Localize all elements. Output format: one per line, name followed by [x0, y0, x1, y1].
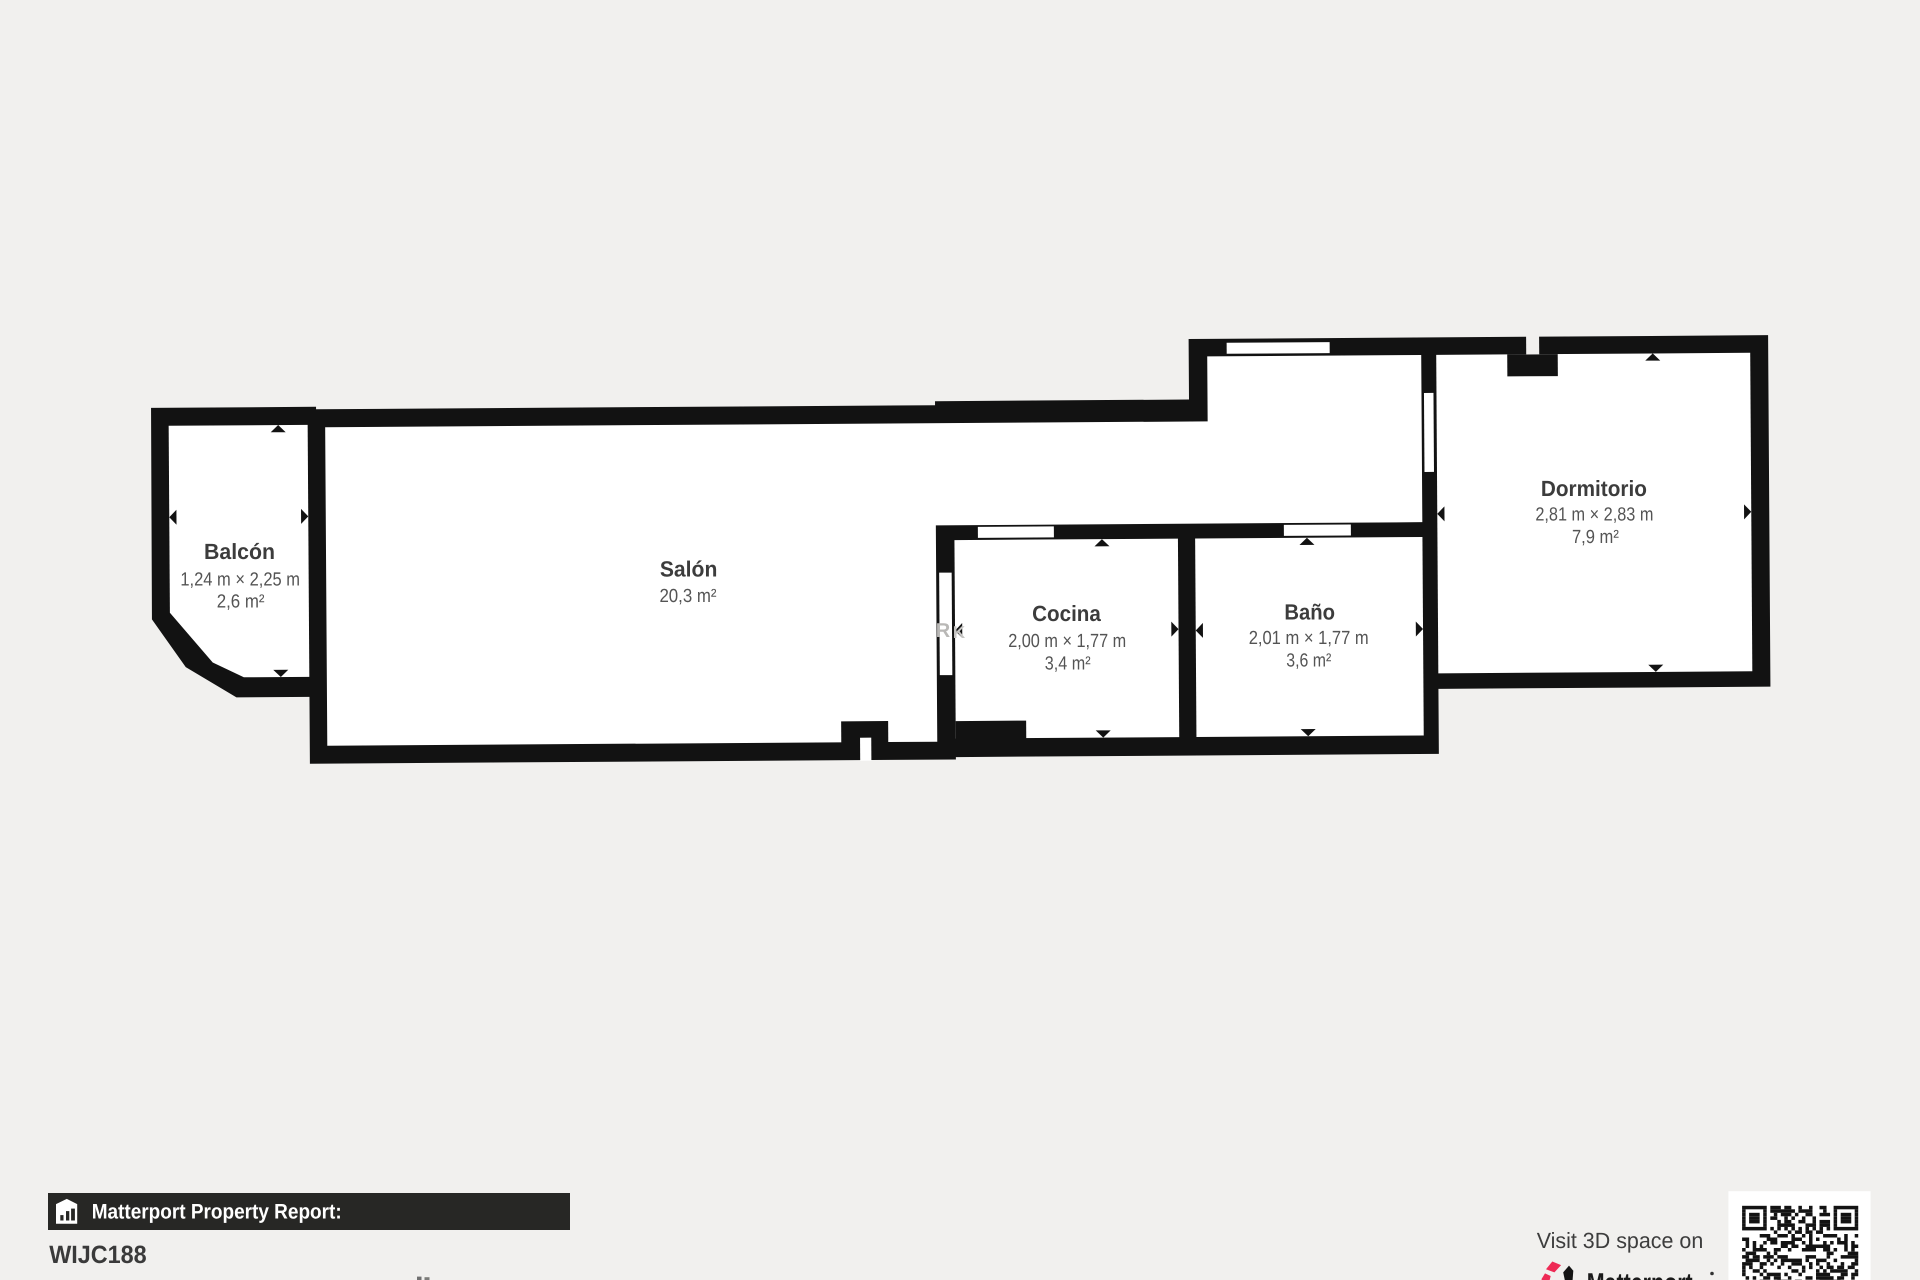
svg-text:2,81 m × 2,83 m: 2,81 m × 2,83 m [1535, 504, 1653, 525]
svg-text:Salón: Salón [660, 557, 718, 582]
svg-text:R: R [936, 620, 951, 642]
svg-text:20,3 m²: 20,3 m² [659, 586, 716, 607]
svg-text:2,01 m × 1,77 m: 2,01 m × 1,77 m [1249, 628, 1369, 649]
svg-text:1,24 m × 2,25 m: 1,24 m × 2,25 m [180, 569, 300, 590]
svg-text:WIJC188: WIJC188 [49, 1241, 147, 1269]
svg-text:Balcón: Balcón [204, 539, 275, 564]
svg-text:Baño: Baño [1284, 600, 1335, 625]
svg-text:Matterport: Matterport [1587, 1268, 1693, 1280]
svg-text:2,00 m × 1,77 m: 2,00 m × 1,77 m [1008, 631, 1126, 652]
svg-text:Dormitorio: Dormitorio [1541, 476, 1647, 501]
svg-text:2,6 m²: 2,6 m² [217, 592, 265, 613]
svg-text:7,9 m²: 7,9 m² [1572, 527, 1619, 548]
svg-text:Visit 3D space on: Visit 3D space on [1537, 1228, 1704, 1253]
svg-text:K: K [953, 623, 966, 642]
svg-text:Cocina: Cocina [1032, 601, 1101, 626]
svg-text:3,4 m²: 3,4 m² [1045, 653, 1091, 674]
svg-text:Matterport Property Report:: Matterport Property Report: [92, 1201, 342, 1224]
svg-text:3,6 m²: 3,6 m² [1286, 650, 1331, 671]
